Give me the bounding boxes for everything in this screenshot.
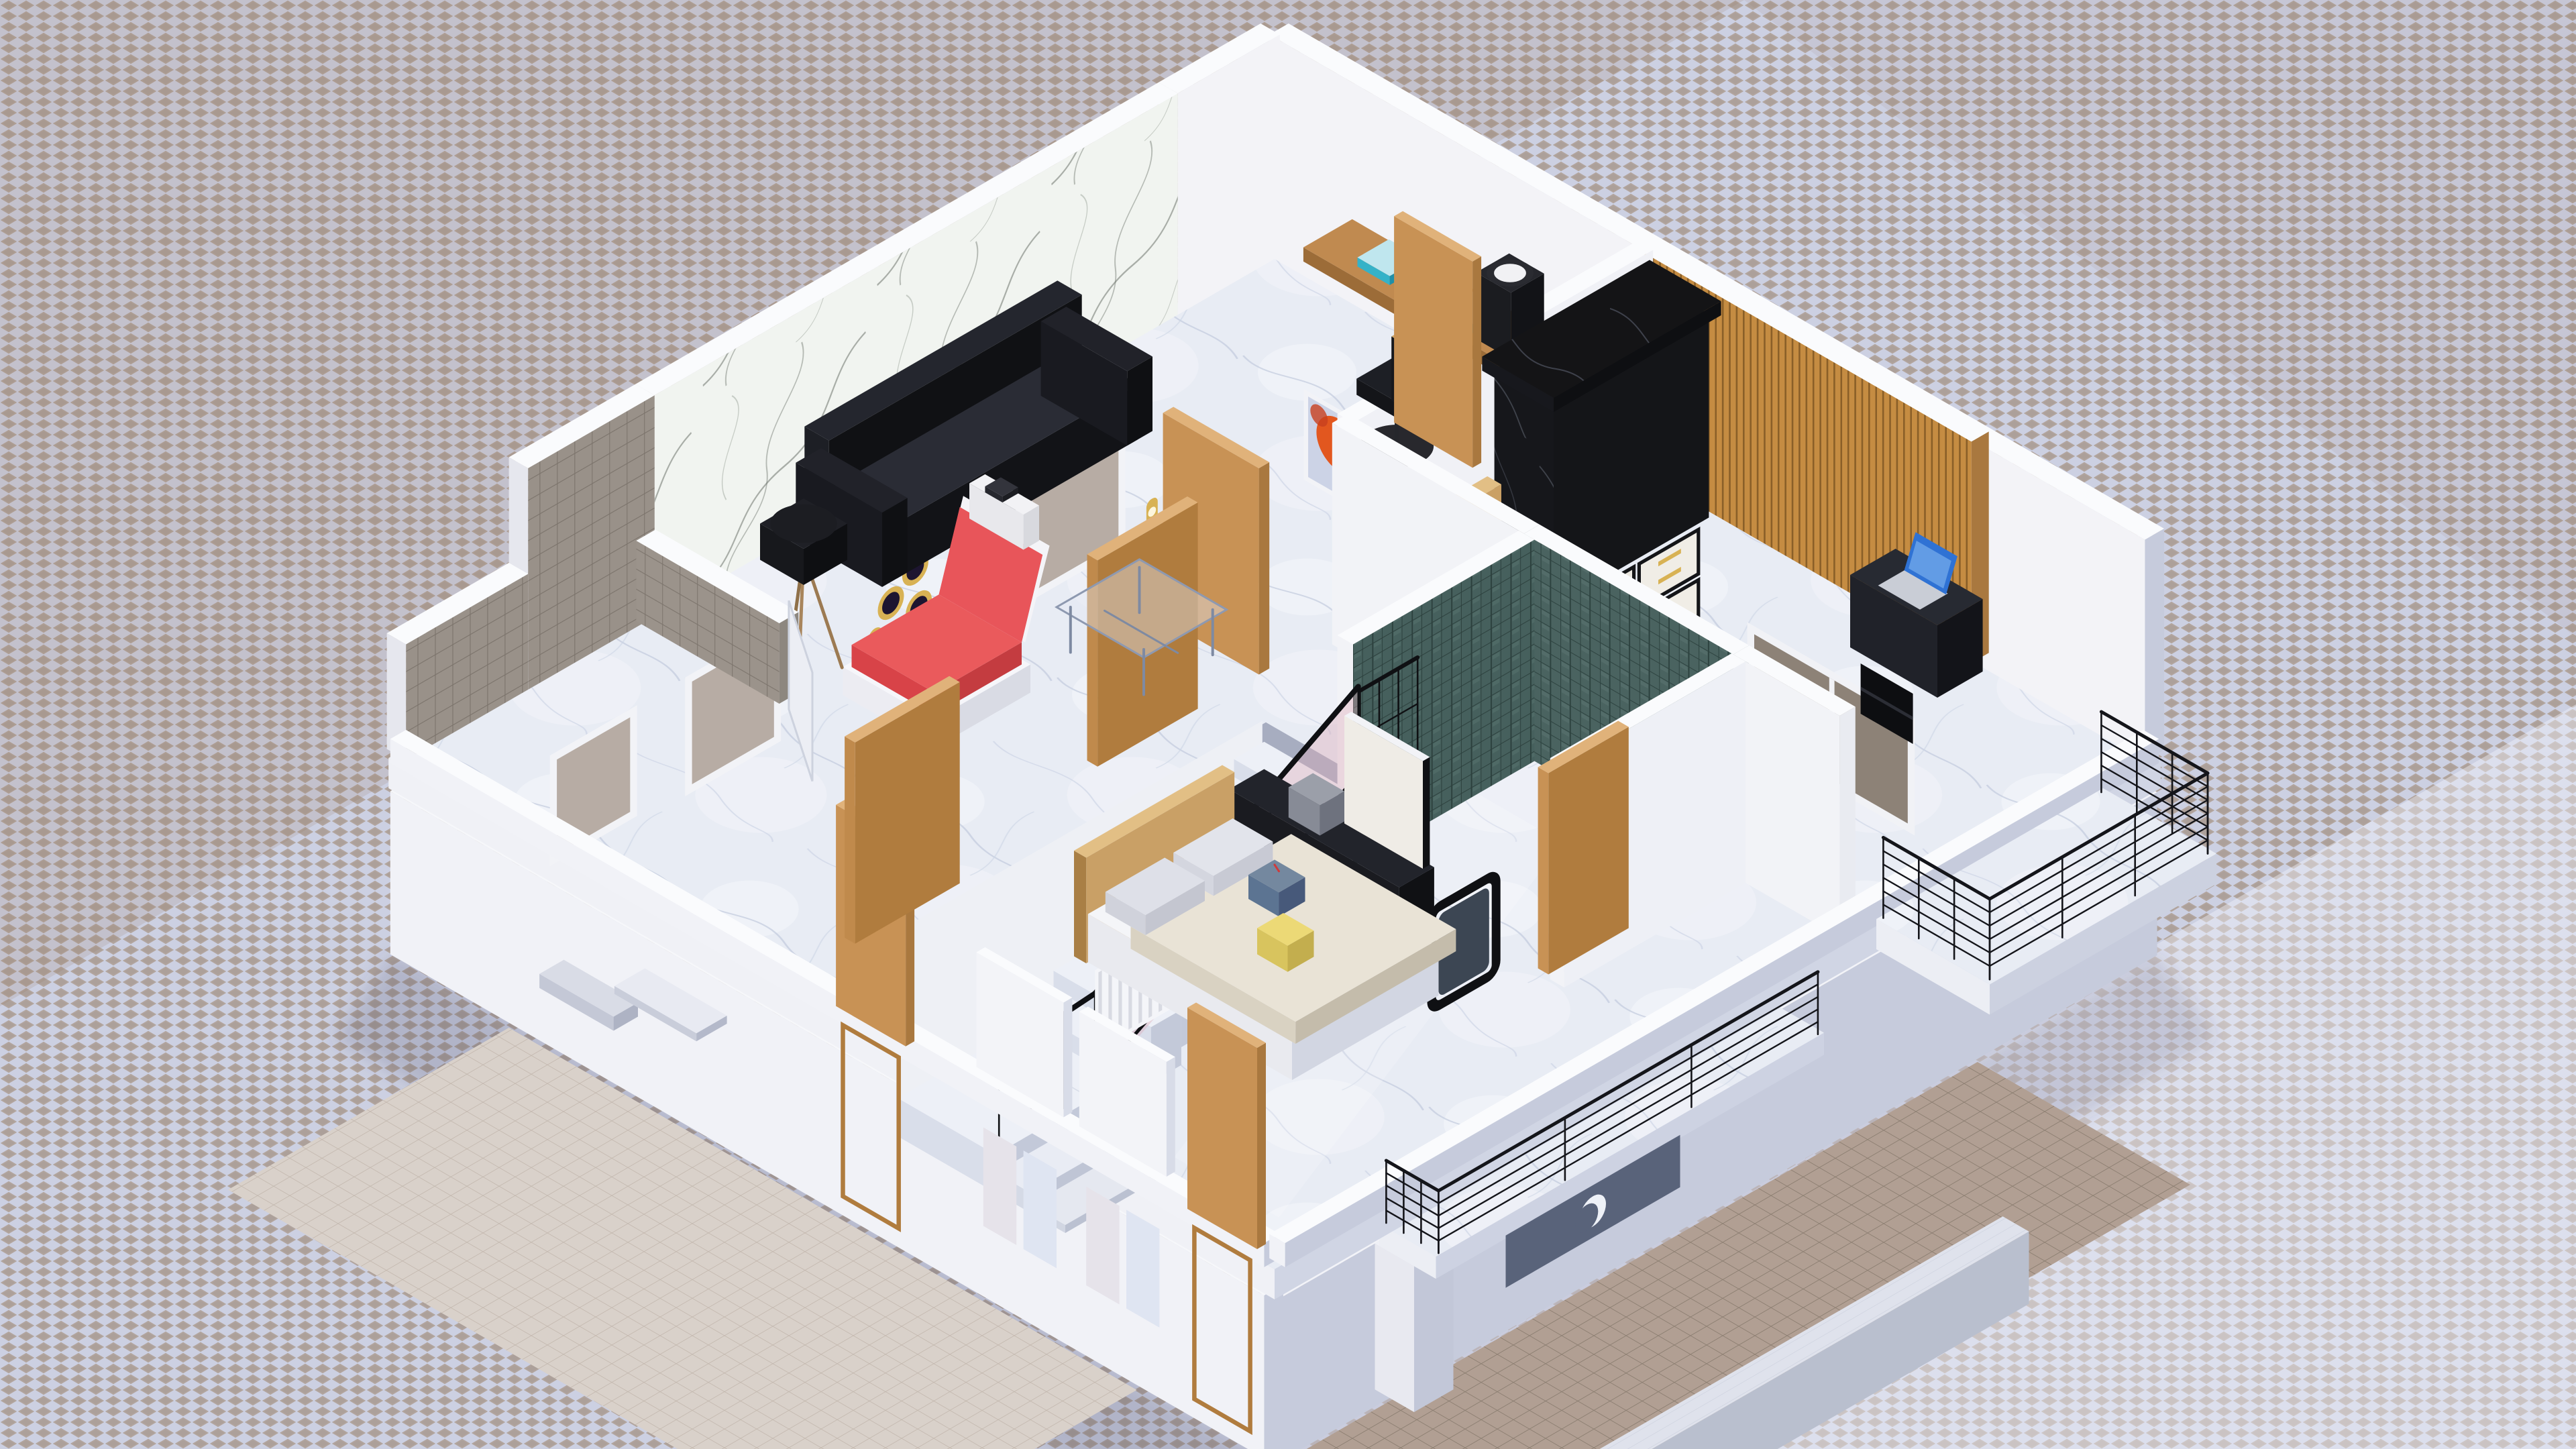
facade-front-left-xface — [1264, 1285, 1283, 1449]
tv-marble-panel-xface — [1423, 757, 1430, 869]
deco-rect — [1126, 1210, 1159, 1328]
hall-door-2-xface — [1259, 462, 1270, 675]
sofa-arm-left-xface — [882, 498, 908, 587]
floorplan-3d-render-stage — [0, 0, 2576, 1449]
page-root: { "meta": { "description": "Isometric 3D… — [0, 0, 2576, 1449]
standing-window-2-xface — [1167, 1057, 1175, 1177]
standing-door-right-yface — [1187, 1008, 1257, 1249]
deco-rect — [983, 1128, 1016, 1246]
standing-door-stairs-yface — [845, 737, 855, 944]
pillar-under-balcony-yface — [1375, 1244, 1415, 1412]
hall-door-1-xface — [1472, 256, 1481, 468]
bathroom-door-yface — [1538, 767, 1549, 975]
wall-back-right-xface — [2145, 529, 2164, 761]
standing-door-right-xface — [1257, 1043, 1266, 1250]
bed2-headboard-yface — [1074, 851, 1086, 963]
sofa-arm-right-xface — [1127, 357, 1152, 446]
hall-door-1 — [1394, 211, 1481, 468]
scene-root — [0, 0, 2576, 1449]
isometric-house-cutaway-render — [0, 0, 2576, 1449]
standing-window-1-xface — [1063, 998, 1072, 1118]
deco-rect — [1024, 1150, 1057, 1269]
deco-rect — [1086, 1187, 1119, 1305]
